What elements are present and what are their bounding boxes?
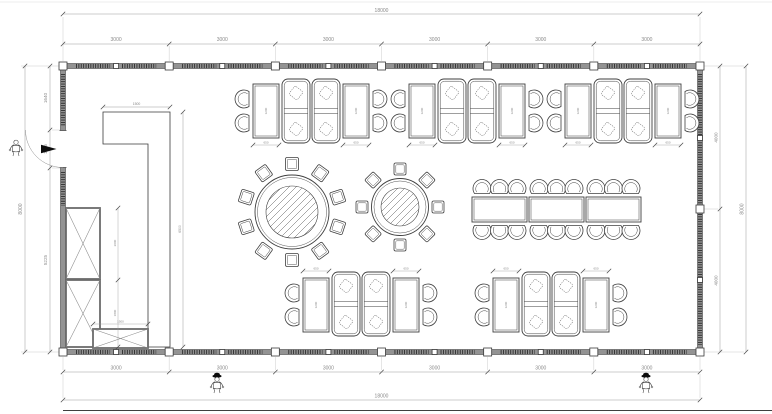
chair-icon (255, 242, 273, 260)
chair-icon (605, 180, 623, 194)
svg-text:3000: 3000 (217, 366, 228, 372)
svg-text:5225: 5225 (43, 254, 48, 265)
chair-icon (391, 90, 405, 108)
svg-text:1500: 1500 (133, 102, 141, 106)
svg-text:3000: 3000 (535, 366, 546, 372)
column (538, 64, 543, 69)
two-seat-table: 1200650 (497, 84, 527, 147)
booth-seating (624, 79, 652, 143)
chair-icon (529, 114, 543, 132)
chair-icon (565, 226, 583, 240)
chair-icon (605, 226, 623, 240)
chair-icon (530, 180, 548, 194)
two-seat-table: 1200650 (391, 267, 421, 332)
svg-text:3000: 3000 (323, 37, 334, 43)
chair-icon (587, 180, 605, 194)
dining-group: 12006501200650 (235, 79, 387, 147)
chair-icon (547, 114, 561, 132)
booth-seating (362, 272, 390, 336)
column (378, 62, 386, 70)
chair-icon (423, 284, 437, 302)
bottom-dimensions: 30003000300030003000300018000 (61, 357, 702, 402)
chair-icon (622, 180, 640, 194)
column (326, 350, 331, 355)
chair-icon (475, 284, 489, 302)
svg-text:3000: 3000 (641, 37, 652, 43)
column (432, 64, 437, 69)
floor-plan-sheet: 1800030003000300030003000300030003000300… (0, 0, 772, 414)
booth-seating (312, 79, 340, 143)
chair-icon (548, 180, 566, 194)
svg-text:650: 650 (665, 141, 670, 145)
chair-icon (285, 308, 299, 326)
chair-icon (391, 114, 405, 132)
two-seat-table: 1200650 (251, 84, 281, 147)
column (644, 64, 649, 69)
chair-icon (508, 226, 526, 240)
svg-text:2000: 2000 (113, 239, 117, 246)
svg-text:8000: 8000 (18, 203, 24, 214)
svg-text:1800: 1800 (113, 309, 117, 316)
svg-text:3000: 3000 (111, 366, 122, 372)
svg-text:1200: 1200 (510, 107, 514, 114)
svg-text:3000: 3000 (429, 37, 440, 43)
svg-text:3000: 3000 (323, 366, 334, 372)
banquet-table-row (472, 180, 641, 240)
svg-text:1200: 1200 (504, 301, 508, 308)
chair-icon (685, 90, 699, 108)
column (378, 348, 386, 356)
chair-icon (285, 284, 299, 302)
column (696, 205, 704, 213)
two-seat-table: 1200650 (581, 267, 611, 332)
svg-text:1200: 1200 (576, 107, 580, 114)
column (114, 64, 119, 69)
svg-text:1640: 1640 (43, 92, 48, 103)
chair-icon (491, 226, 509, 240)
chair-icon (565, 180, 583, 194)
svg-text:4000: 4000 (713, 275, 718, 286)
booth-seating (438, 79, 466, 143)
chair-icon (286, 254, 299, 267)
svg-text:18000: 18000 (375, 8, 389, 14)
chair-icon (685, 114, 699, 132)
entry-arrow-icon (41, 145, 57, 153)
chair-icon (530, 226, 548, 240)
booth-seating (552, 272, 580, 336)
svg-text:4000: 4000 (713, 132, 718, 143)
two-seat-table: 1200650 (407, 84, 437, 147)
column (59, 62, 67, 70)
chair-icon (255, 164, 273, 182)
chair-icon (491, 180, 509, 194)
chair-icon (508, 180, 526, 194)
chair-icon (373, 90, 387, 108)
svg-text:1500: 1500 (117, 320, 124, 324)
booth-seating (522, 272, 550, 336)
chair-icon (356, 201, 368, 213)
svg-text:3000: 3000 (641, 366, 652, 372)
column (271, 348, 279, 356)
chair-icon (587, 226, 605, 240)
svg-text:650: 650 (353, 141, 358, 145)
column (271, 62, 279, 70)
two-seat-table: 1200650 (491, 267, 521, 332)
svg-text:650: 650 (313, 267, 318, 271)
svg-text:3000: 3000 (429, 366, 440, 372)
svg-text:1200: 1200 (420, 107, 424, 114)
chair-icon (529, 90, 543, 108)
person-figure (639, 373, 653, 393)
chair-icon (622, 226, 640, 240)
chair-icon (613, 308, 627, 326)
column (696, 62, 704, 70)
svg-text:1200: 1200 (354, 107, 358, 114)
dining-group: 12006501200650 (285, 267, 437, 336)
chair-icon (365, 172, 382, 189)
dining-group: 12006501200650 (547, 79, 699, 147)
svg-text:650: 650 (263, 141, 268, 145)
chair-icon (613, 284, 627, 302)
person-figure (9, 140, 23, 156)
svg-text:650: 650 (509, 141, 514, 145)
left-dimensions: 8000164011355225 (18, 64, 61, 354)
svg-text:1200: 1200 (594, 301, 598, 308)
svg-text:3000: 3000 (535, 37, 546, 43)
svg-text:650: 650 (593, 267, 598, 271)
svg-text:650: 650 (419, 141, 424, 145)
svg-text:18000: 18000 (375, 394, 389, 400)
chair-icon (235, 90, 249, 108)
svg-text:650: 650 (403, 267, 408, 271)
chair-icon (475, 308, 489, 326)
column (644, 350, 649, 355)
chair-icon (394, 239, 406, 251)
chair-icon (330, 189, 346, 205)
chair-icon (473, 226, 491, 240)
storage-cabinets: 200018001500 (66, 206, 150, 349)
column (698, 136, 703, 141)
chair-icon (365, 225, 382, 242)
booth-seating (468, 79, 496, 143)
svg-text:650: 650 (575, 141, 580, 145)
column (432, 350, 437, 355)
person-figure (210, 373, 224, 393)
column (484, 62, 492, 70)
column (326, 64, 331, 69)
svg-text:8000: 8000 (739, 203, 745, 214)
chair-icon (330, 219, 346, 235)
round-table-10-seat (217, 158, 367, 267)
dining-group: 12006501200650 (391, 79, 543, 147)
svg-text:6500: 6500 (178, 225, 182, 233)
svg-text:1200: 1200 (314, 301, 318, 308)
column (114, 350, 119, 355)
two-seat-table: 1200650 (563, 84, 593, 147)
svg-text:3000: 3000 (217, 37, 228, 43)
two-seat-table: 1200650 (653, 84, 683, 147)
svg-text:3000: 3000 (111, 37, 122, 43)
column (165, 62, 173, 70)
entry-door (26, 130, 68, 168)
dining-group: 12006501200650 (475, 267, 627, 336)
chair-icon (311, 242, 329, 260)
chair-icon (238, 189, 254, 205)
chair-icon (473, 180, 491, 194)
chair-icon (235, 114, 249, 132)
column (590, 348, 598, 356)
column (538, 350, 543, 355)
chair-icon (548, 226, 566, 240)
right-dimensions: 400040008000 (703, 64, 748, 354)
floor-plan-drawing: 1800030003000300030003000300030003000300… (0, 0, 772, 414)
chair-icon (547, 90, 561, 108)
svg-text:1200: 1200 (264, 107, 268, 114)
svg-text:1200: 1200 (666, 107, 670, 114)
column (59, 348, 67, 356)
chair-icon (423, 308, 437, 326)
chair-icon (238, 219, 254, 235)
column (220, 350, 225, 355)
chair-icon (373, 114, 387, 132)
two-seat-table: 1200650 (341, 84, 371, 147)
round-table-8-seat (325, 163, 475, 251)
chair-icon (418, 225, 435, 242)
booth-seating (282, 79, 310, 143)
two-seat-table: 1200650 (301, 267, 331, 332)
chair-icon (432, 201, 444, 213)
chair-icon (286, 158, 299, 171)
booth-seating (332, 272, 360, 336)
chair-icon (418, 172, 435, 189)
svg-text:1200: 1200 (404, 301, 408, 308)
svg-text:650: 650 (503, 267, 508, 271)
column (484, 348, 492, 356)
column (165, 348, 173, 356)
column (696, 348, 704, 356)
booth-seating (594, 79, 622, 143)
column (220, 64, 225, 69)
column (698, 278, 703, 283)
column (590, 62, 598, 70)
top-dimensions: 18000300030003000300030003000 (61, 8, 702, 61)
chair-icon (311, 164, 329, 182)
chair-icon (394, 163, 406, 175)
